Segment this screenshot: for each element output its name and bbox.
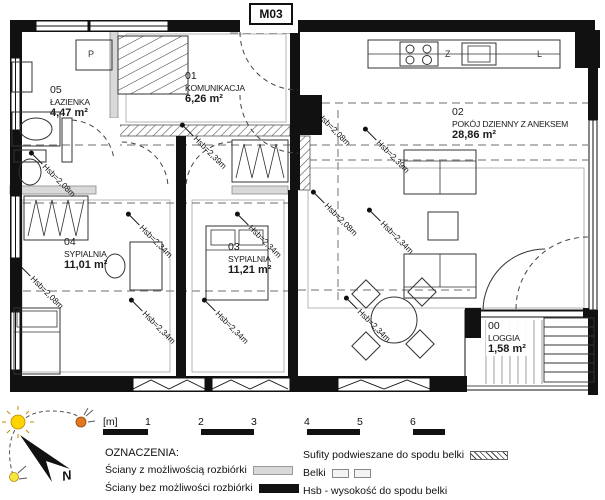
loggia-door-swing [483,249,545,311]
room-area: 11,01 m² [64,259,107,272]
dining-chair [406,330,434,358]
unit-title: M03 [259,7,282,21]
legend-item-black-walls: Ściany bez możliwości rozbiórki [105,482,299,494]
room-id: 05 [50,84,90,97]
room-label-02: 02 POKÓJ DZIENNY Z ANEKSEM 28,86 m² [452,106,568,142]
room-area: 1,58 m² [488,343,526,356]
unit-title-box: M03 [249,3,293,25]
room-label-05: 05 ŁAZIENKA 4,47 m² [50,84,90,120]
hall-wardrobe [118,36,188,94]
leader-line [367,130,377,140]
legend-item-beams: Belki [303,467,371,479]
room-name: KOMUNIKACJA [185,83,245,93]
dining-chair [352,332,380,360]
room-area: 6,26 m² [185,93,245,106]
leader-line [206,301,216,311]
washbasin [20,118,52,140]
living-door-swing [240,95,298,153]
scale-unit: [m] [103,416,118,428]
scale-bar-segment [307,429,360,435]
legend-label: Sufity podwieszane do spodu belki [303,449,464,461]
sink-label: Z [445,49,451,59]
scale-tick: 5 [357,416,363,428]
leader-line [133,301,143,311]
legend-label: Ściany bez możliwości rozbiórki [105,482,253,494]
room-label-04: 04 SYPIALNIA 11,01 m² [64,236,107,272]
scale-tick: 2 [198,416,204,428]
legend-item-hsb: Hsb - wysokość do spodu belki [303,485,447,497]
legend-label: Hsb - wysokość do spodu belki [303,485,447,497]
beam-swatch-box [332,469,349,478]
room-name: SYPIALNIA [228,254,271,264]
legend-label: Ściany z możliwością rozbiórki [105,464,247,476]
desk-chair [105,254,125,278]
beam-swatch-box [354,469,371,478]
leader-line [130,215,140,225]
fridge-label: L [537,49,542,59]
room-name: SYPIALNIA [64,249,107,259]
gray-wall-swatch [253,466,293,475]
bathroom-door-swing [72,120,114,160]
leader-line [308,103,318,113]
room-name: ŁAZIENKA [50,97,90,107]
room-area: 28,86 m² [452,129,568,142]
scale-bar-segment [201,429,254,435]
room-area: 4,47 m² [50,107,90,120]
room-id: 02 [452,106,568,119]
scale-tick: 1 [145,416,151,428]
leader-line [315,193,325,203]
leader-line [348,299,358,309]
room-area: 11,21 m² [228,264,271,277]
room-id: 04 [64,236,107,249]
legend-item-gray-walls: Ściany z możliwością rozbiórki [105,464,293,476]
balcony-window-swing [516,237,588,309]
beam-swatch [332,469,371,478]
leader-line [33,154,43,164]
loggia [465,310,595,390]
scale-bar-segment [103,429,148,435]
loggia-stairs [544,318,594,382]
room-name: POKÓJ DZIENNY Z ANEKSEM [452,119,568,129]
floor-plan-page: M03 05 ŁAZIENKA 4,47 m² 01 KOMUNIKACJA 6… [0,0,605,500]
scale-tick: 4 [304,416,310,428]
entrance-door-swing [240,32,298,90]
washer-label: P [88,49,94,59]
legend-heading: OZNACZENIA: [105,447,179,459]
sunset-sun-icon [76,408,95,427]
leader-line [371,211,381,221]
dining-chair [408,278,436,306]
room-label-01: 01 KOMUNIKACJA 6,26 m² [185,70,245,106]
sunrise-sun-icon [10,466,28,482]
legend-label: Belki [303,467,326,479]
leader-line [21,266,31,276]
leader-line [184,126,194,136]
room-id: 00 [488,320,526,333]
scale-bar-segment [413,429,445,435]
black-wall-swatch [259,484,299,493]
compass-sun-path [0,403,100,500]
hatch-swatch [470,451,508,460]
room-id: 01 [185,70,245,83]
legend-item-suspended-ceilings: Sufity podwieszane do spodu belki [303,449,508,461]
bedroom04-door-swing [122,142,168,188]
sun-icon [2,406,34,438]
room-label-00: 00 LOGGIA 1,58 m² [486,320,528,356]
scale-bar: [m] 1 2 3 4 5 6 [103,416,455,440]
scale-tick: 3 [251,416,257,428]
bathroom-door-leaf [62,118,72,162]
scale-tick: 6 [410,416,416,428]
coffee-table [428,212,458,240]
leader-line [239,215,249,225]
room-name: LOGGIA [488,333,526,343]
